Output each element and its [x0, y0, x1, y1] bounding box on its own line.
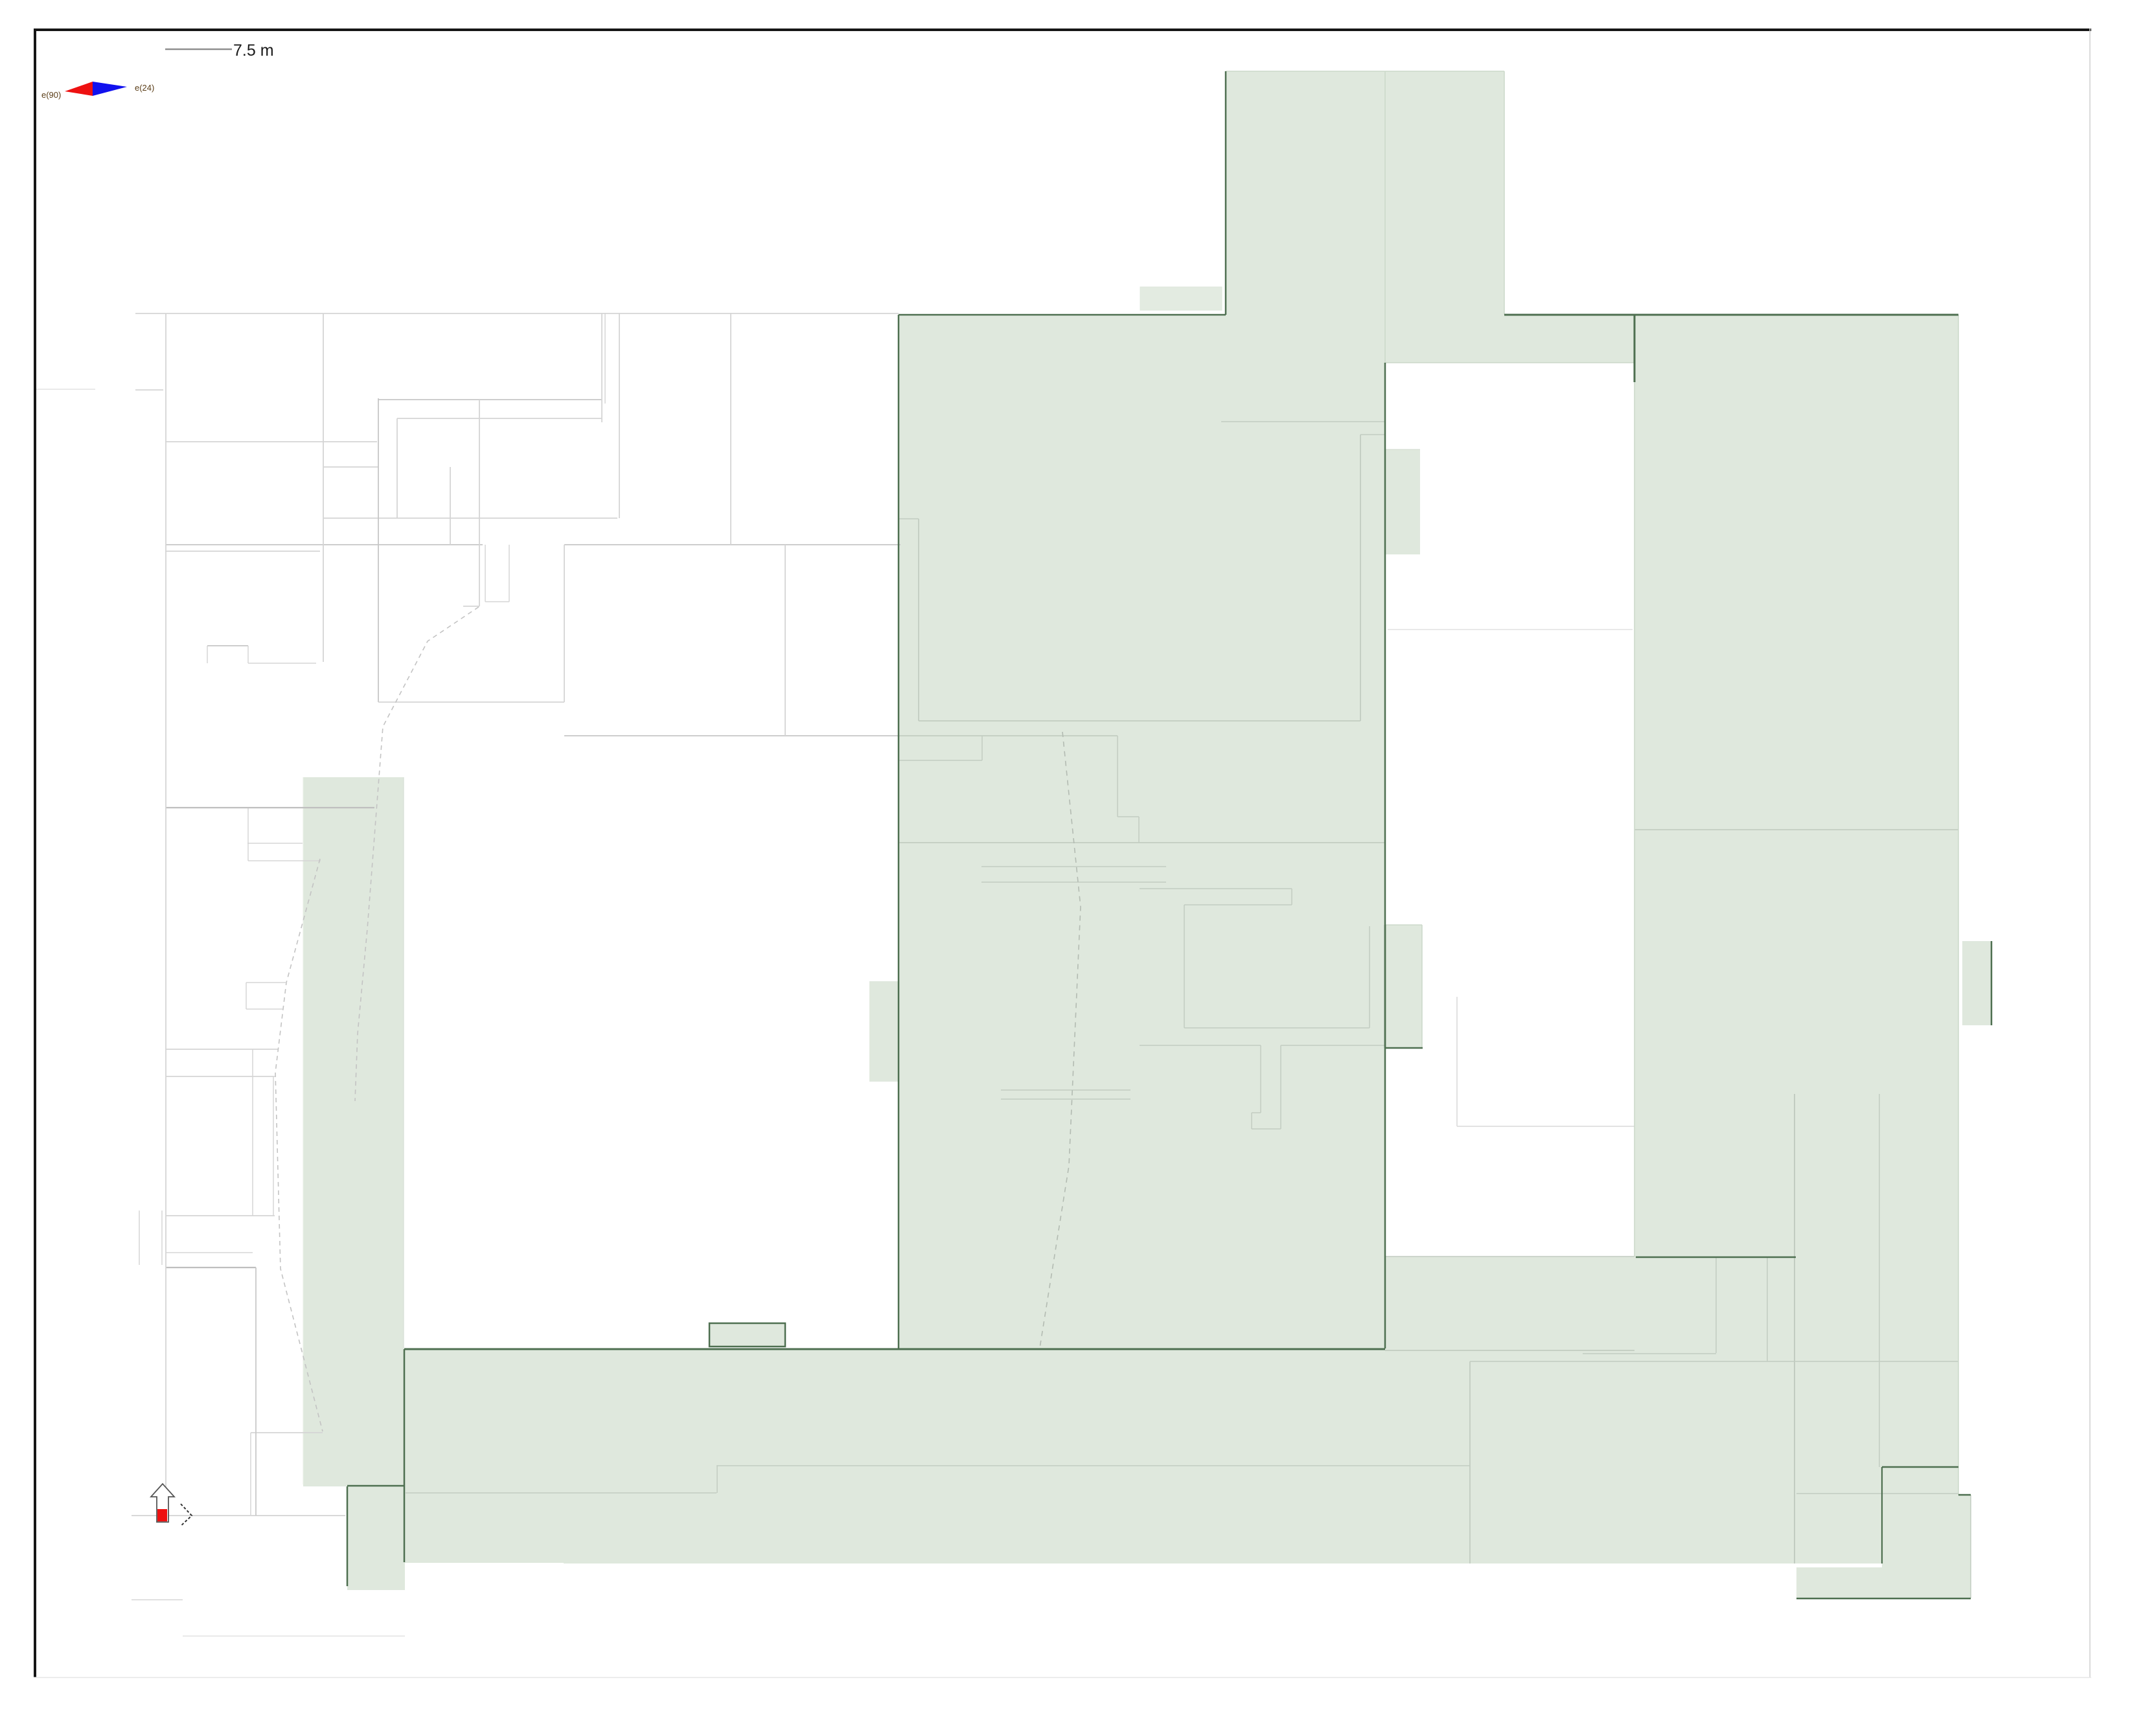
svg-text:e(24): e(24): [135, 83, 154, 93]
svg-text:7.5 m: 7.5 m: [233, 41, 274, 60]
svg-text:e(90): e(90): [41, 90, 61, 100]
